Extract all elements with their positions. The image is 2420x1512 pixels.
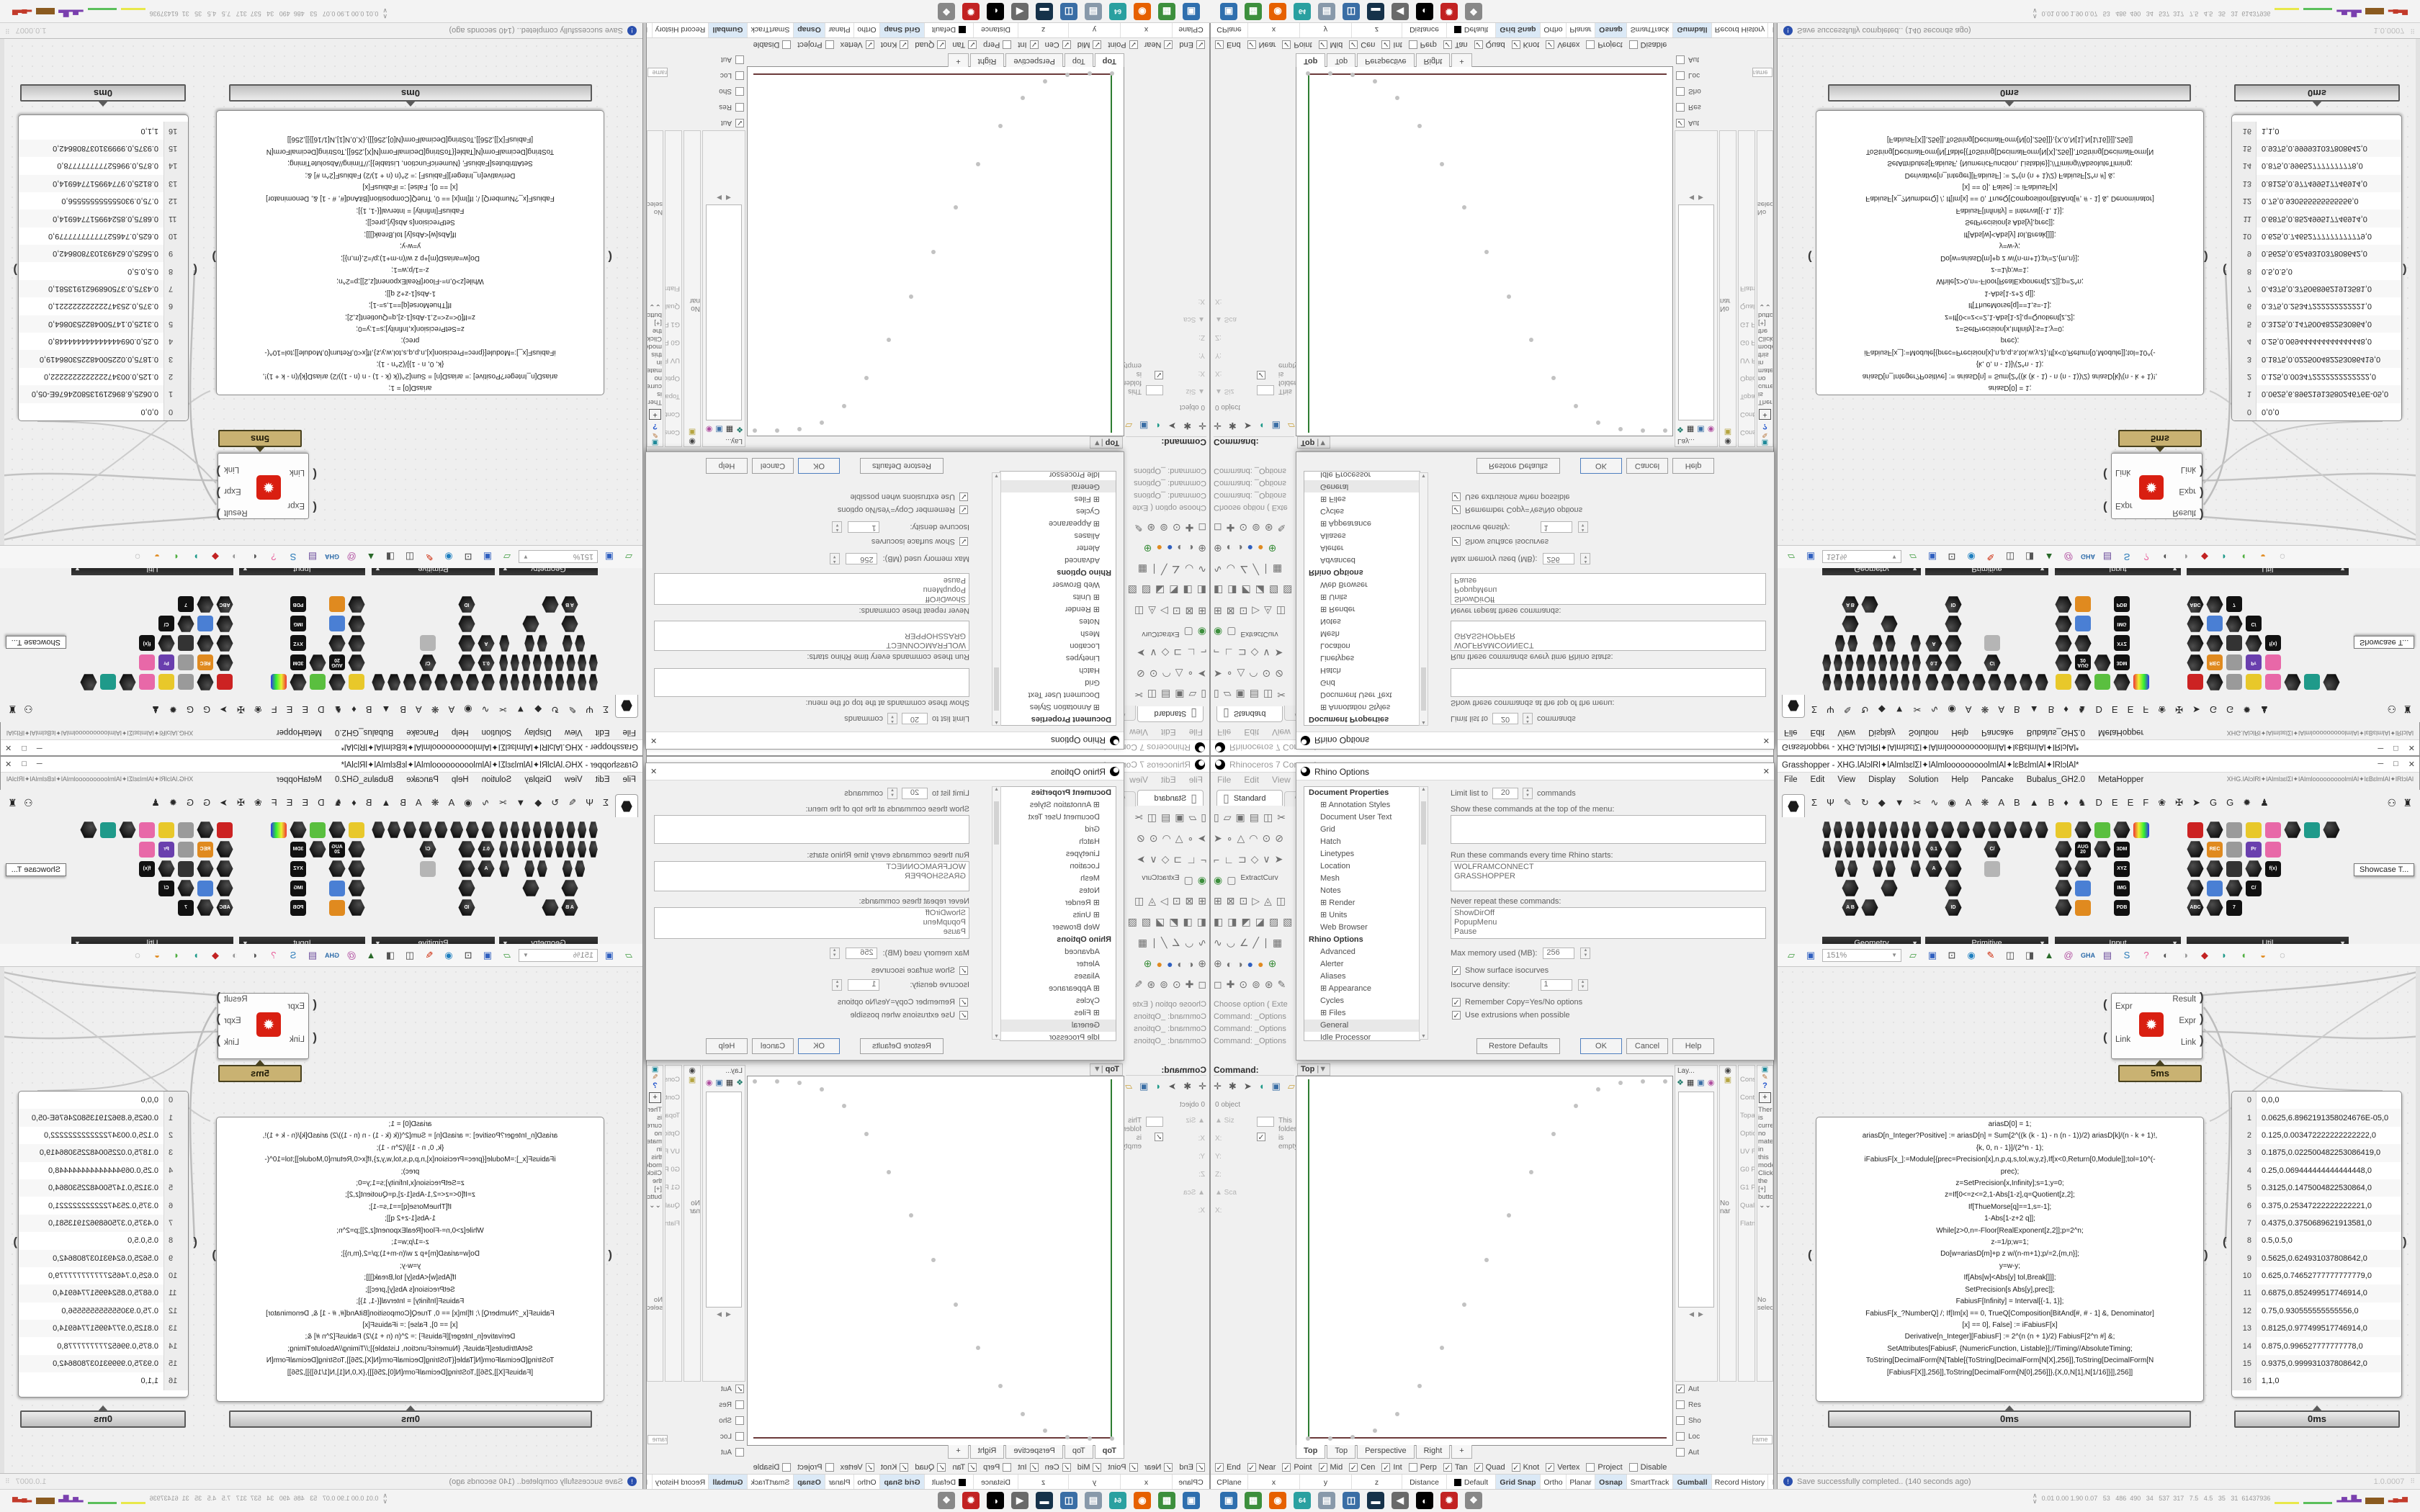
curve-tool-icon[interactable]: ⊐ bbox=[1238, 647, 1247, 659]
grasshopper-menu-item[interactable]: View bbox=[1831, 728, 1862, 737]
component-icon-b[interactable] bbox=[329, 881, 345, 896]
grad-cap-icon[interactable]: ➤ bbox=[1244, 1081, 1252, 1092]
dock-next-icon[interactable]: ▶ bbox=[1698, 194, 1703, 202]
category-tab[interactable]: E bbox=[2125, 702, 2136, 716]
component-icon-a[interactable] bbox=[178, 655, 194, 671]
checkbox-icon[interactable]: ✓ bbox=[1164, 1463, 1173, 1472]
tree-item-general[interactable]: General bbox=[1000, 480, 1116, 492]
cancel-button[interactable]: Cancel bbox=[1626, 458, 1668, 474]
category-tab[interactable]: ◉ bbox=[462, 702, 474, 716]
component-hex-icon[interactable] bbox=[2055, 880, 2072, 897]
tree-item-appearance[interactable]: ⊞ Appearance bbox=[1304, 517, 1420, 529]
category-tab[interactable]: Σ bbox=[1809, 702, 1819, 716]
checkbox-icon[interactable]: ✓ bbox=[1215, 1463, 1224, 1472]
palette-icon[interactable]: ❖ bbox=[1465, 3, 1482, 20]
category-tab[interactable]: ∿ bbox=[1929, 702, 1941, 716]
category-tab[interactable]: ↻ bbox=[1859, 796, 1871, 810]
category-tab[interactable]: ✹ bbox=[2241, 796, 2253, 810]
tree-item-notes[interactable]: Notes bbox=[1000, 615, 1116, 627]
data-panel[interactable]: 00,0,010.0625,6.8962191358024676E-05,020… bbox=[18, 1091, 189, 1398]
curve-tool-icon[interactable]: ⊐ bbox=[1173, 647, 1182, 659]
component-hex-icon[interactable] bbox=[1822, 822, 1832, 839]
save-file-icon[interactable]: ▣ bbox=[1803, 948, 1819, 963]
vee-icon[interactable]: ∨ bbox=[1149, 647, 1157, 659]
circle-icon[interactable]: ⊙ bbox=[1149, 832, 1158, 845]
code-panel-output-hook[interactable]: ) bbox=[2204, 1248, 2208, 1262]
osnap-tan[interactable]: ✓Tan bbox=[1443, 1463, 1468, 1472]
category-tab[interactable]: ◆ bbox=[1876, 796, 1888, 810]
osnap-disable[interactable]: Disable bbox=[753, 40, 792, 49]
component-hex-icon[interactable]: C/ bbox=[1984, 841, 2001, 858]
component-icon-p[interactable] bbox=[2265, 675, 2281, 690]
gha-chip-icon[interactable]: GHA bbox=[324, 549, 340, 565]
component-hex-icon[interactable] bbox=[521, 822, 531, 839]
checkbox-icon[interactable] bbox=[825, 1463, 834, 1472]
component-hex-icon[interactable] bbox=[290, 822, 307, 839]
component-input-hook[interactable]: ( bbox=[313, 1030, 317, 1045]
component-hex-icon[interactable] bbox=[566, 841, 575, 858]
mask-white-icon[interactable]: ◑ bbox=[2177, 948, 2193, 963]
component-icon-o[interactable]: REC bbox=[2207, 655, 2223, 671]
teal-dome-icon[interactable]: ◖ bbox=[1155, 1081, 1161, 1092]
frame-field[interactable]: rame bbox=[1752, 68, 1773, 77]
status-x[interactable]: x bbox=[1120, 22, 1172, 37]
tree-item-web-browser[interactable]: Web Browser bbox=[1304, 922, 1420, 934]
vee-icon[interactable]: ∨ bbox=[1263, 647, 1270, 659]
notebook-icon[interactable]: ▤ bbox=[305, 948, 321, 963]
component-icon-y[interactable] bbox=[2056, 822, 2071, 838]
component-icon-b[interactable] bbox=[197, 881, 213, 896]
component-hex-icon[interactable] bbox=[458, 860, 475, 878]
component-output-hook[interactable]: ) bbox=[216, 990, 220, 1004]
mirror-icon[interactable]: ▷ bbox=[1252, 605, 1260, 617]
category-tab[interactable]: D bbox=[2094, 796, 2105, 810]
rhino-app-icon[interactable]: ◐ bbox=[1416, 3, 1433, 20]
input-port-link[interactable]: Link bbox=[2115, 1035, 2130, 1044]
category-tab[interactable]: F bbox=[2141, 702, 2151, 716]
paint-flame-icon[interactable]: ✎ bbox=[421, 549, 437, 565]
category-tab[interactable]: ♞ bbox=[2076, 796, 2089, 810]
layer-monitor-icon[interactable]: ▣ bbox=[1697, 425, 1704, 434]
teal-dome-icon[interactable]: ◖ bbox=[1259, 1081, 1265, 1092]
component-hex-icon[interactable] bbox=[197, 899, 214, 917]
data-panel[interactable]: 00,0,010.0625,6.8962191358024676E-05,020… bbox=[2231, 114, 2402, 421]
sphere-grey-icon[interactable]: ◐ bbox=[1188, 542, 1193, 554]
component-hex-icon[interactable] bbox=[403, 822, 417, 839]
options-dialog-titlebar[interactable]: Rhino Options ✕ bbox=[1296, 763, 1774, 780]
green-app-icon[interactable]: ▩ bbox=[1158, 3, 1175, 20]
component-icon-b[interactable] bbox=[329, 616, 345, 632]
patch-icon[interactable]: ▨ bbox=[1269, 916, 1278, 928]
component-output-hook[interactable]: ) bbox=[2200, 486, 2204, 500]
input-port-link[interactable]: Link bbox=[290, 1035, 305, 1044]
output-port-result[interactable]: Result bbox=[2172, 995, 2196, 1004]
snap-icon[interactable]: ➤ bbox=[1275, 647, 1283, 659]
data-panel-input-hook[interactable]: ( bbox=[2223, 1235, 2227, 1249]
viewport-top[interactable] bbox=[747, 66, 1124, 436]
output-port-result[interactable]: Result bbox=[2172, 508, 2196, 517]
component-hex-icon[interactable] bbox=[561, 880, 578, 897]
open-file-icon[interactable]: ▱ bbox=[621, 549, 637, 565]
rhino-menu-item[interactable]: Edit bbox=[1155, 775, 1183, 785]
gumball-compass-icon[interactable]: ✛ bbox=[1214, 420, 1222, 431]
component-hex-icon[interactable] bbox=[588, 841, 598, 858]
component-icon-p[interactable] bbox=[139, 842, 155, 858]
component-hex-icon[interactable] bbox=[1867, 841, 1876, 858]
tab-params[interactable] bbox=[615, 694, 638, 718]
cancel-button[interactable]: Cancel bbox=[1626, 1038, 1668, 1054]
component-chip-icon[interactable]: 7 bbox=[2226, 900, 2242, 916]
component-hex-icon[interactable] bbox=[1873, 860, 1883, 878]
component-hex-icon[interactable] bbox=[2284, 822, 2301, 839]
ok-button[interactable]: OK bbox=[1580, 1038, 1622, 1054]
web-globe-icon[interactable]: ◉ bbox=[1198, 874, 1206, 886]
photo-icon[interactable]: ▣ bbox=[1272, 420, 1281, 431]
layer-dark-icon[interactable]: ▦ bbox=[726, 425, 733, 434]
category-tab[interactable]: B bbox=[2012, 702, 2022, 716]
category-tab[interactable]: B bbox=[2012, 796, 2022, 810]
checkbox-icon[interactable]: ✓ bbox=[968, 1463, 977, 1472]
component-icon-b[interactable] bbox=[197, 616, 213, 632]
component-icon-q[interactable] bbox=[2226, 636, 2242, 652]
osnap-near[interactable]: ✓Near bbox=[1144, 40, 1173, 49]
tree-item-idle-processor[interactable]: Idle Processor bbox=[1000, 471, 1116, 480]
angle-icon[interactable]: ∠ bbox=[1240, 937, 1249, 949]
isocurve-density-input[interactable]: 1 bbox=[1541, 979, 1572, 991]
input-port-expr[interactable]: Expr bbox=[2115, 501, 2133, 510]
canvas-scrollbar[interactable] bbox=[2416, 967, 2420, 1473]
component-hex-icon[interactable] bbox=[1878, 841, 1888, 858]
component-hex-icon[interactable] bbox=[2035, 822, 2048, 839]
cut-icon[interactable]: ✂ bbox=[1134, 811, 1143, 824]
viewport-title[interactable]: Top |▼ bbox=[1297, 436, 1330, 449]
component-icon-u[interactable]: Pr bbox=[2246, 655, 2262, 671]
component-hex-icon[interactable] bbox=[537, 635, 548, 652]
checkbox-icon[interactable]: ✓ bbox=[1196, 1463, 1205, 1472]
folder-icon[interactable]: ▱ bbox=[1288, 420, 1295, 431]
component-hex-icon[interactable] bbox=[2055, 654, 2072, 672]
component-hex-icon[interactable] bbox=[418, 674, 432, 691]
status-osnap[interactable]: Osnap bbox=[1595, 22, 1627, 37]
component-hex-icon[interactable] bbox=[1856, 822, 1865, 839]
arc-icon[interactable]: ◠ bbox=[1162, 832, 1171, 845]
layer-wheel-icon[interactable]: ◉ bbox=[1708, 1078, 1715, 1087]
component-hex-icon[interactable] bbox=[1912, 822, 1922, 839]
category-tab[interactable]: E bbox=[300, 796, 310, 810]
add-material-button[interactable]: + bbox=[649, 1092, 661, 1103]
checkbox-icon[interactable] bbox=[1676, 1400, 1685, 1409]
component-hex-icon[interactable] bbox=[1822, 841, 1832, 858]
dock-next-icon[interactable]: ▶ bbox=[717, 1310, 722, 1318]
component-hex-icon[interactable] bbox=[1945, 654, 1962, 672]
limit-spinner[interactable]: ▲▼ bbox=[887, 788, 897, 799]
pink-box-icon[interactable]: ? bbox=[2138, 948, 2154, 963]
component-hex-icon[interactable] bbox=[328, 635, 346, 652]
component-hex-icon[interactable] bbox=[2187, 654, 2204, 672]
text-icon[interactable]: ∣ bbox=[1152, 937, 1157, 949]
data-panel-output-hook[interactable]: ) bbox=[13, 263, 17, 277]
component-hex-icon[interactable] bbox=[1845, 841, 1854, 858]
pencil-icon[interactable]: ✎ bbox=[1757, 1074, 1773, 1081]
tree-item-mesh[interactable]: Mesh bbox=[1000, 627, 1116, 639]
component-hex-icon[interactable] bbox=[1886, 860, 1896, 878]
status-x[interactable]: x bbox=[1248, 22, 1300, 37]
status-planar[interactable]: Planar bbox=[825, 1475, 853, 1490]
dock-checkbox-row[interactable]: Aut bbox=[694, 1448, 744, 1457]
grasshopper-titlebar[interactable]: Grasshopper - XHG.lAlɔlRl✦lAlmlɜɛlƩl✦lAl… bbox=[1778, 739, 2419, 755]
grasshopper-menu-item[interactable]: View bbox=[1831, 775, 1862, 784]
drape-icon[interactable]: ▧ bbox=[1283, 916, 1292, 928]
dock-checkbox-row[interactable]: Res bbox=[1676, 1400, 1726, 1409]
component-hex-icon[interactable] bbox=[511, 841, 520, 858]
tree-item-appearance[interactable]: ⊞ Appearance bbox=[1304, 983, 1420, 995]
category-tab[interactable]: ❀ bbox=[2156, 702, 2168, 716]
component-icon-r[interactable] bbox=[217, 675, 233, 690]
angle-icon[interactable]: ∠ bbox=[1171, 563, 1180, 575]
dual-monitor-icon[interactable]: ◫ bbox=[1060, 1492, 1077, 1509]
grasshopper-menu-item[interactable]: Help bbox=[1945, 728, 1975, 737]
component-hex-icon[interactable] bbox=[458, 841, 475, 858]
leader-icon[interactable]: ◡ bbox=[1185, 563, 1193, 575]
component-icon-a[interactable] bbox=[178, 842, 194, 858]
component-hex-icon[interactable] bbox=[2074, 674, 2092, 691]
help-button[interactable]: Help bbox=[1672, 1038, 1714, 1054]
checkbox-icon[interactable]: ✓ bbox=[866, 40, 874, 49]
save-file-icon[interactable]: ▣ bbox=[1175, 688, 1184, 701]
dock-layers-panel[interactable]: Lay... ❖ ▦ ▣ ◉ ◀▶ bbox=[1675, 130, 1718, 447]
category-tab[interactable]: ↻ bbox=[549, 702, 561, 716]
category-tab[interactable]: ♟ bbox=[2258, 796, 2271, 810]
status-y[interactable]: y bbox=[1300, 22, 1352, 37]
dock-checkbox-row[interactable]: Aut bbox=[1676, 1448, 1726, 1457]
category-tab[interactable]: ♦ bbox=[349, 796, 359, 810]
checkbox-icon[interactable]: ✓ bbox=[1676, 119, 1685, 127]
egg-orange-icon[interactable]: ◒ bbox=[149, 549, 165, 565]
layer-monitor-icon[interactable]: ▣ bbox=[715, 1078, 722, 1087]
egg-orange-icon[interactable]: ◒ bbox=[2255, 549, 2271, 565]
data-panel-input-hook[interactable]: ( bbox=[193, 263, 197, 277]
checkbox-icon[interactable]: ✓ bbox=[866, 1463, 874, 1472]
preview-eye-icon[interactable]: ◉ bbox=[1963, 549, 1979, 565]
copy-icon[interactable]: ◫ bbox=[1263, 688, 1273, 701]
gumball-icon[interactable]: ✚ bbox=[1186, 978, 1194, 991]
dock-checkbox-row[interactable]: Res bbox=[1676, 103, 1726, 112]
folder-icon[interactable]: ▱ bbox=[1125, 1081, 1132, 1092]
layer-dark-icon[interactable]: ▦ bbox=[1687, 1078, 1694, 1087]
component-icon-y[interactable] bbox=[349, 822, 364, 838]
cylinder-icon[interactable]: ▢ bbox=[1184, 626, 1193, 638]
search-s-icon[interactable]: S bbox=[285, 948, 301, 963]
category-tab[interactable]: G bbox=[184, 702, 196, 716]
extrusions-checkbox[interactable]: ✓ bbox=[959, 1011, 968, 1020]
osnap-mid[interactable]: ✓Mid bbox=[1319, 40, 1343, 49]
component-hex-icon[interactable] bbox=[511, 654, 520, 672]
component-hex-icon[interactable]: A B bbox=[1842, 596, 1859, 613]
pan-icon[interactable]: ◻ bbox=[1214, 521, 1222, 534]
globe-icon[interactable]: ⊕ bbox=[1144, 958, 1152, 970]
component-icon-p[interactable] bbox=[2265, 655, 2281, 671]
tree-item-idle-processor[interactable]: Idle Processor bbox=[1000, 1032, 1116, 1041]
data-panel-input-hook[interactable]: ( bbox=[2223, 263, 2227, 277]
dock-checkbox-row[interactable]: ✓Aut bbox=[694, 119, 744, 127]
component-hex-icon[interactable] bbox=[1834, 674, 1843, 691]
rhino-command-prompt[interactable]: Command: bbox=[1126, 436, 1206, 447]
leader-icon[interactable]: ◡ bbox=[1227, 563, 1235, 575]
text-icon[interactable]: ∣ bbox=[1152, 563, 1157, 575]
status-record-history[interactable]: Record History bbox=[652, 22, 708, 37]
show-commands-box[interactable] bbox=[654, 815, 969, 844]
grasshopper-menu-item[interactable]: Pancake bbox=[1975, 775, 2020, 784]
category-tab[interactable]: ✠ bbox=[235, 796, 247, 810]
category-tab[interactable]: ❋ bbox=[1978, 702, 1991, 716]
rotate-icon[interactable]: ⊠ bbox=[1227, 895, 1235, 907]
layer-wheel-icon[interactable]: ◉ bbox=[706, 1078, 713, 1087]
tree-item-notes[interactable]: Notes bbox=[1304, 615, 1420, 627]
grasshopper-menu-item[interactable]: Bubalus_GH2.0 bbox=[2020, 775, 2092, 784]
grasshopper-menu-item[interactable]: Bubalus_GH2.0 bbox=[328, 775, 400, 784]
new-file-icon[interactable]: ▯ bbox=[1201, 688, 1206, 701]
tree-item-linetypes[interactable]: Linetypes bbox=[1000, 848, 1116, 860]
leader-icon[interactable]: ◡ bbox=[1227, 937, 1235, 949]
tree-item-linetypes[interactable]: Linetypes bbox=[1000, 652, 1116, 664]
vee-icon[interactable]: ∨ bbox=[1263, 853, 1270, 865]
osnap-mid[interactable]: ✓Mid bbox=[1077, 1463, 1102, 1472]
component-hex-icon[interactable] bbox=[1945, 841, 1962, 858]
component-hex-icon[interactable] bbox=[216, 654, 233, 672]
open-file-icon[interactable]: ▱ bbox=[1189, 811, 1197, 824]
close-icon[interactable]: ✕ bbox=[5, 743, 12, 752]
category-tab[interactable]: ➤ bbox=[2190, 702, 2202, 716]
checkbox-icon[interactable]: ✓ bbox=[1093, 1463, 1102, 1472]
component-chip-icon[interactable]: PDB bbox=[2114, 900, 2130, 916]
component-hex-icon[interactable]: 0.1 bbox=[478, 841, 495, 858]
pink-box-icon[interactable]: ? bbox=[266, 549, 282, 565]
component-hex-icon[interactable] bbox=[2245, 635, 2262, 652]
component-chip-icon[interactable]: AUG 20 bbox=[2075, 655, 2091, 671]
cylinder-icon[interactable]: ▢ bbox=[1227, 626, 1236, 638]
photo-icon[interactable]: ▣ bbox=[1139, 420, 1148, 431]
category-tab[interactable]: G bbox=[201, 796, 212, 810]
array-icon[interactable]: ◬ bbox=[1148, 895, 1156, 907]
pan-icon[interactable]: ◻ bbox=[1198, 521, 1206, 534]
category-tab[interactable]: ✹ bbox=[167, 796, 179, 810]
component-hex-icon[interactable]: A B bbox=[561, 899, 578, 917]
patch-icon[interactable]: ▨ bbox=[1269, 584, 1278, 596]
chevrons-icon[interactable]: ⌄⌄ bbox=[647, 302, 663, 310]
component-chip-icon[interactable]: IMG bbox=[290, 616, 306, 632]
component-hex-icon[interactable] bbox=[1886, 635, 1896, 652]
scarab-red-icon[interactable]: ✹ bbox=[1440, 3, 1458, 20]
grasshopper-titlebar[interactable]: Grasshopper - XHG.lAlɔlRl✦lAlmlɜɛlƩl✦lAl… bbox=[1, 757, 642, 773]
select-arrow-icon[interactable]: ➤ bbox=[1198, 832, 1206, 845]
status-record-history[interactable]: Record History bbox=[1712, 1475, 1768, 1490]
status-osnap[interactable]: Osnap bbox=[793, 22, 825, 37]
component-output-hook[interactable]: ) bbox=[2200, 1033, 2204, 1048]
curve-tool-icon[interactable]: ⊐ bbox=[1238, 853, 1247, 865]
limit-spinner[interactable]: ▲▼ bbox=[1523, 788, 1533, 799]
surface-icon[interactable]: ◧ bbox=[1214, 584, 1223, 596]
component-hex-icon[interactable] bbox=[197, 674, 214, 691]
grasshopper-menu-item[interactable]: Help bbox=[445, 728, 475, 737]
sphere-orange-icon[interactable]: ● bbox=[1258, 542, 1263, 554]
layer-new-icon[interactable]: ❖ bbox=[1677, 425, 1684, 434]
status-grid-snap[interactable]: Grid Snap bbox=[879, 22, 924, 37]
component-hex-icon[interactable] bbox=[2020, 822, 2033, 839]
mask-white-icon[interactable]: ◑ bbox=[227, 549, 243, 565]
code-panel-input-hook[interactable]: ( bbox=[608, 250, 612, 264]
checkbox-icon[interactable]: ✓ bbox=[1512, 1463, 1520, 1472]
show-commands-box[interactable] bbox=[654, 668, 969, 697]
component-chip-icon[interactable]: AUG 20 bbox=[329, 842, 345, 858]
status-default[interactable]: Default bbox=[924, 1475, 973, 1490]
viewport-tab-top[interactable]: Top bbox=[1296, 1445, 1325, 1459]
code-panel-output-hook[interactable]: ) bbox=[212, 250, 216, 264]
viewport-tab-perspective[interactable]: Perspective bbox=[1357, 53, 1414, 67]
osnap-quad[interactable]: ✓Quad bbox=[1474, 40, 1505, 49]
osnap-vertex[interactable]: ✓Vertex bbox=[841, 40, 874, 49]
tree-item-files[interactable]: ⊞ Files bbox=[1304, 1007, 1420, 1020]
pencil-icon[interactable]: ✎ bbox=[1757, 431, 1773, 438]
angle-icon[interactable]: ∠ bbox=[1240, 563, 1249, 575]
component-icon-g[interactable] bbox=[2094, 675, 2110, 690]
limit-list-input[interactable]: 20 bbox=[902, 788, 928, 799]
new-file-icon[interactable]: ▯ bbox=[1201, 811, 1206, 824]
component-hex-icon[interactable] bbox=[2113, 674, 2130, 691]
zoom-select[interactable]: 151%▼ bbox=[519, 551, 598, 564]
component-hex-icon[interactable] bbox=[2206, 822, 2223, 839]
array-icon[interactable]: ◬ bbox=[1148, 605, 1156, 617]
checkbox-icon[interactable] bbox=[735, 1400, 744, 1409]
category-tab[interactable]: F bbox=[269, 702, 279, 716]
tree-item-location[interactable]: Location bbox=[1304, 860, 1420, 873]
cut-icon[interactable]: ✂ bbox=[1277, 688, 1286, 701]
input-port-expr[interactable]: Expr bbox=[2115, 1002, 2133, 1011]
status-gumball[interactable]: Gumball bbox=[708, 22, 747, 37]
open-file-icon[interactable]: ▱ bbox=[621, 948, 637, 963]
rhino-app-icon[interactable]: ◐ bbox=[1416, 1492, 1433, 1509]
status-osnap[interactable]: Osnap bbox=[1595, 1475, 1627, 1490]
system-monitor-widget[interactable]: ∧∨ 0.01 0.00 1.90 0.07 53 486 490 34 537… bbox=[13, 1493, 387, 1504]
grasshopper-menu-item[interactable]: File bbox=[1778, 775, 1804, 784]
component-hex-icon[interactable] bbox=[2245, 860, 2262, 878]
component-hex-icon[interactable] bbox=[216, 860, 233, 878]
paint-flame-icon[interactable]: ✎ bbox=[1983, 549, 1999, 565]
output-port-result[interactable]: Result bbox=[224, 508, 248, 517]
category-tab[interactable]: ✎ bbox=[566, 796, 578, 810]
tree-item-cycles[interactable]: Cycles bbox=[1000, 505, 1116, 517]
select-arrow-icon[interactable]: ➤ bbox=[1198, 667, 1206, 680]
output-port-link[interactable]: Link bbox=[224, 1038, 239, 1047]
component-hex-icon[interactable] bbox=[1912, 841, 1922, 858]
zoom-icon[interactable]: ⊙ bbox=[1173, 978, 1181, 991]
speaker-icon[interactable]: ◨ bbox=[382, 549, 398, 565]
mirror-icon[interactable]: ▷ bbox=[1252, 895, 1260, 907]
component-hex-icon[interactable] bbox=[458, 880, 475, 897]
component-icon-w[interactable] bbox=[2133, 822, 2149, 838]
console-icon[interactable]: ▬ bbox=[1367, 1492, 1384, 1509]
status-y[interactable]: y bbox=[1300, 1475, 1352, 1490]
cluster-icon[interactable]: ◫ bbox=[2002, 549, 2018, 565]
rect-icon[interactable]: ⌐ bbox=[1201, 647, 1206, 659]
grasshopper-menu-item[interactable]: Edit bbox=[589, 775, 617, 784]
help-icon[interactable]: ? bbox=[1757, 422, 1773, 431]
checkbox-icon[interactable] bbox=[1676, 1448, 1685, 1457]
category-tab[interactable]: ❋ bbox=[429, 796, 442, 810]
dock-layers-panel[interactable]: Lay... ❖ ▦ ▣ ◉ ◀▶ bbox=[702, 130, 745, 447]
osnap-tan[interactable]: ✓Tan bbox=[952, 1463, 977, 1472]
component-icon-o[interactable] bbox=[329, 597, 345, 613]
component-hex-icon[interactable] bbox=[2226, 616, 2243, 633]
